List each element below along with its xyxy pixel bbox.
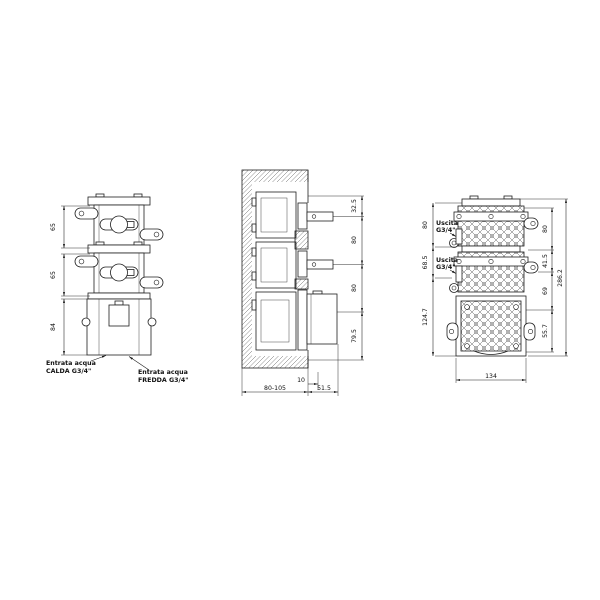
dim-back-right-top: 80: [542, 225, 549, 233]
screw-hole: [452, 241, 456, 245]
dim-back-right-bottom: 55.7: [542, 324, 549, 338]
screw-hole: [528, 329, 532, 333]
spindle-shaft: [307, 260, 333, 269]
wall-wedge: [295, 279, 308, 289]
top-tab: [96, 242, 104, 245]
dim-wall-depth-range: 80-105: [264, 385, 286, 392]
dim-back-left-top: 80: [422, 221, 429, 229]
section-spindle-2: [298, 251, 333, 277]
front-valve-module-1: [75, 194, 163, 245]
corner-screw: [465, 344, 470, 349]
mid-plate: [462, 246, 520, 252]
spindle-shaft: [307, 212, 333, 221]
screw-hole: [79, 211, 84, 216]
flange: [298, 203, 307, 229]
back-module-1: [450, 196, 539, 248]
back-module-2: [450, 246, 539, 293]
screw: [489, 214, 493, 218]
cartridge-spindle: [111, 264, 128, 281]
cap-tab: [115, 301, 123, 305]
bottom-arc: [474, 351, 508, 355]
front-inlet-labels: Entrata acqua CALDA G3/4" Entrata acqua …: [46, 356, 188, 385]
dim-back-left-mid: 68.5: [422, 256, 429, 270]
dim-section-mid1: 80: [351, 236, 358, 244]
set-screw: [312, 215, 316, 219]
dim-back-overall-height: 286.2: [557, 269, 564, 287]
mounting-ear: [75, 256, 98, 267]
hot-inlet-label-line2: CALDA G3/4": [46, 368, 91, 375]
screw-hole: [79, 259, 84, 264]
dim-plaster-offset: 10: [297, 377, 305, 384]
dim-front-module1: 65: [50, 223, 57, 231]
screw-hole: [449, 329, 453, 333]
mid-plate: [88, 245, 150, 253]
mounting-plate: [298, 290, 307, 350]
screw: [489, 259, 493, 263]
mounting-ear: [140, 277, 163, 288]
box-bump: [313, 291, 322, 294]
corner-screw: [514, 344, 519, 349]
front-dimensions: 65 65 84: [50, 206, 90, 355]
dim-section-bottom: 79.5: [351, 329, 358, 343]
section-view: 32.5 80 80 79.5 10 80-105 51.5: [242, 170, 364, 396]
bottom-plate: [88, 293, 150, 299]
dim-protrusion: 51.5: [317, 385, 331, 392]
screw-hole: [531, 265, 535, 269]
cold-inlet-label-line2: FREDDA G3/4": [138, 377, 188, 384]
corner-screw: [465, 305, 470, 310]
outlet2-label-line2: G3/4": [436, 264, 456, 271]
side-port: [148, 318, 156, 326]
front-view: 65 65 84 Entrata acqua CALDA G3/4" Entra…: [46, 194, 188, 384]
outlet1-label-line1: Uscita: [436, 220, 458, 227]
screw: [457, 214, 461, 218]
outlet1-label-line2: G3/4": [436, 227, 456, 234]
top-plate: [462, 199, 520, 206]
hot-inlet-label-line1: Entrata acqua: [46, 360, 96, 367]
protruding-box: [307, 294, 337, 344]
screw-hole: [154, 232, 159, 237]
dim-section-mid2: 80: [351, 284, 358, 292]
screw-hole: [531, 221, 535, 225]
dim-back-left-bottom: 124.7: [422, 308, 429, 326]
back-dimension-width: 134: [456, 358, 526, 383]
dim-section-top: 32.5: [351, 199, 358, 213]
front-valve-module-2: [75, 242, 163, 299]
wall-wedge: [295, 231, 308, 249]
leader-cold-inlet: [129, 357, 149, 371]
top-tab: [134, 242, 142, 245]
outlet-port-1: [456, 229, 462, 244]
screw-hole: [154, 280, 159, 285]
outlet-port-2: [456, 266, 462, 282]
front-mixer-body: [82, 299, 156, 355]
dim-back-width: 134: [485, 373, 497, 380]
dim-back-right-mid1: 41.5: [542, 254, 549, 268]
corner-screw: [514, 305, 519, 310]
flange: [298, 251, 307, 277]
section-volume-box: [298, 290, 337, 350]
technical-drawing: 65 65 84 Entrata acqua CALDA G3/4" Entra…: [0, 0, 600, 600]
drawing-page: 65 65 84 Entrata acqua CALDA G3/4" Entra…: [0, 0, 600, 600]
top-tab: [96, 194, 104, 197]
screw-hole: [452, 286, 456, 290]
cartridge-spindle: [111, 216, 128, 233]
screw: [521, 259, 525, 263]
inspection-cap: [109, 305, 129, 326]
screw: [521, 214, 525, 218]
dim-back-right-mid2: 69: [542, 287, 549, 295]
side-port: [82, 318, 90, 326]
outlet2-label-line1: Uscita: [436, 257, 458, 264]
top-tab: [134, 194, 142, 197]
section-spindle-1: [298, 203, 333, 229]
dim-front-body: 84: [50, 323, 57, 331]
box-back-panel: [461, 301, 521, 351]
top-plate: [88, 197, 150, 205]
mounting-ear: [75, 208, 98, 219]
dim-front-module2: 65: [50, 271, 57, 279]
back-view: Uscita G3/4" Uscita G3/4" 80 68.5 124.7: [422, 196, 568, 383]
mounting-ear: [140, 229, 163, 240]
cold-inlet-label-line1: Entrata acqua: [138, 369, 188, 376]
set-screw: [312, 263, 316, 267]
back-mixer-box: [447, 296, 535, 356]
